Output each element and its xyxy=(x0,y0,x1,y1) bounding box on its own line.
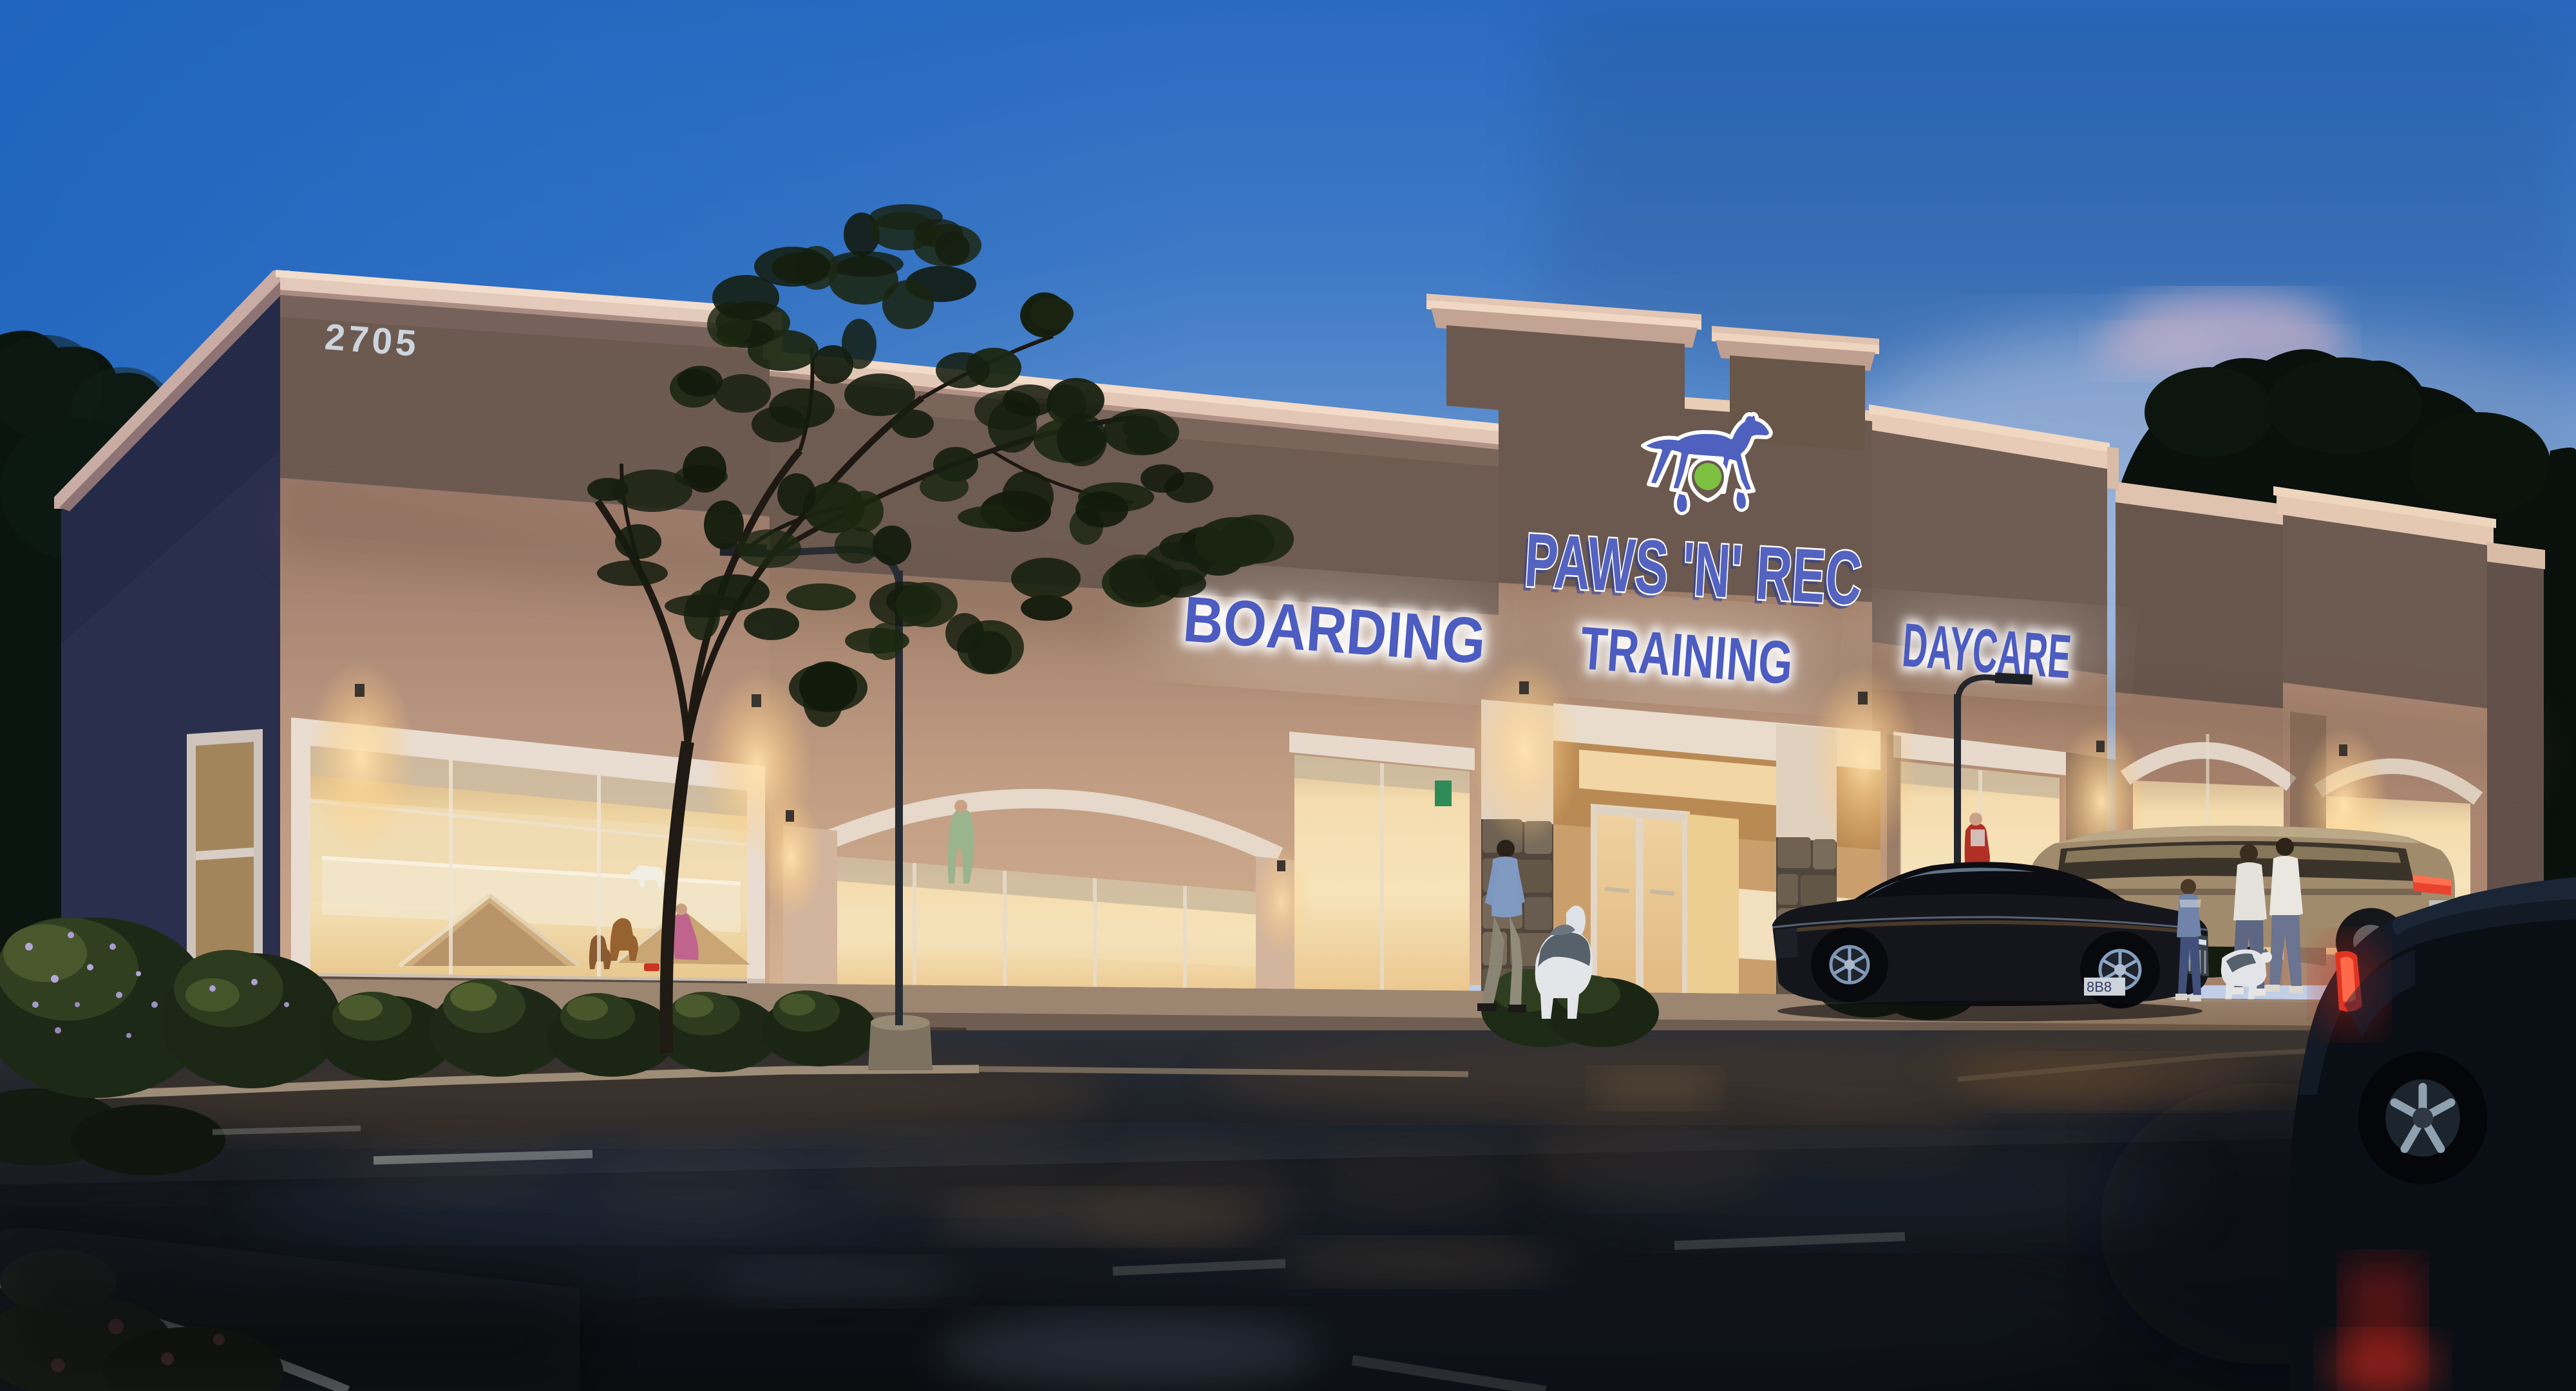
svg-text:8B8: 8B8 xyxy=(2087,979,2112,995)
svg-text:2705: 2705 xyxy=(323,316,421,364)
